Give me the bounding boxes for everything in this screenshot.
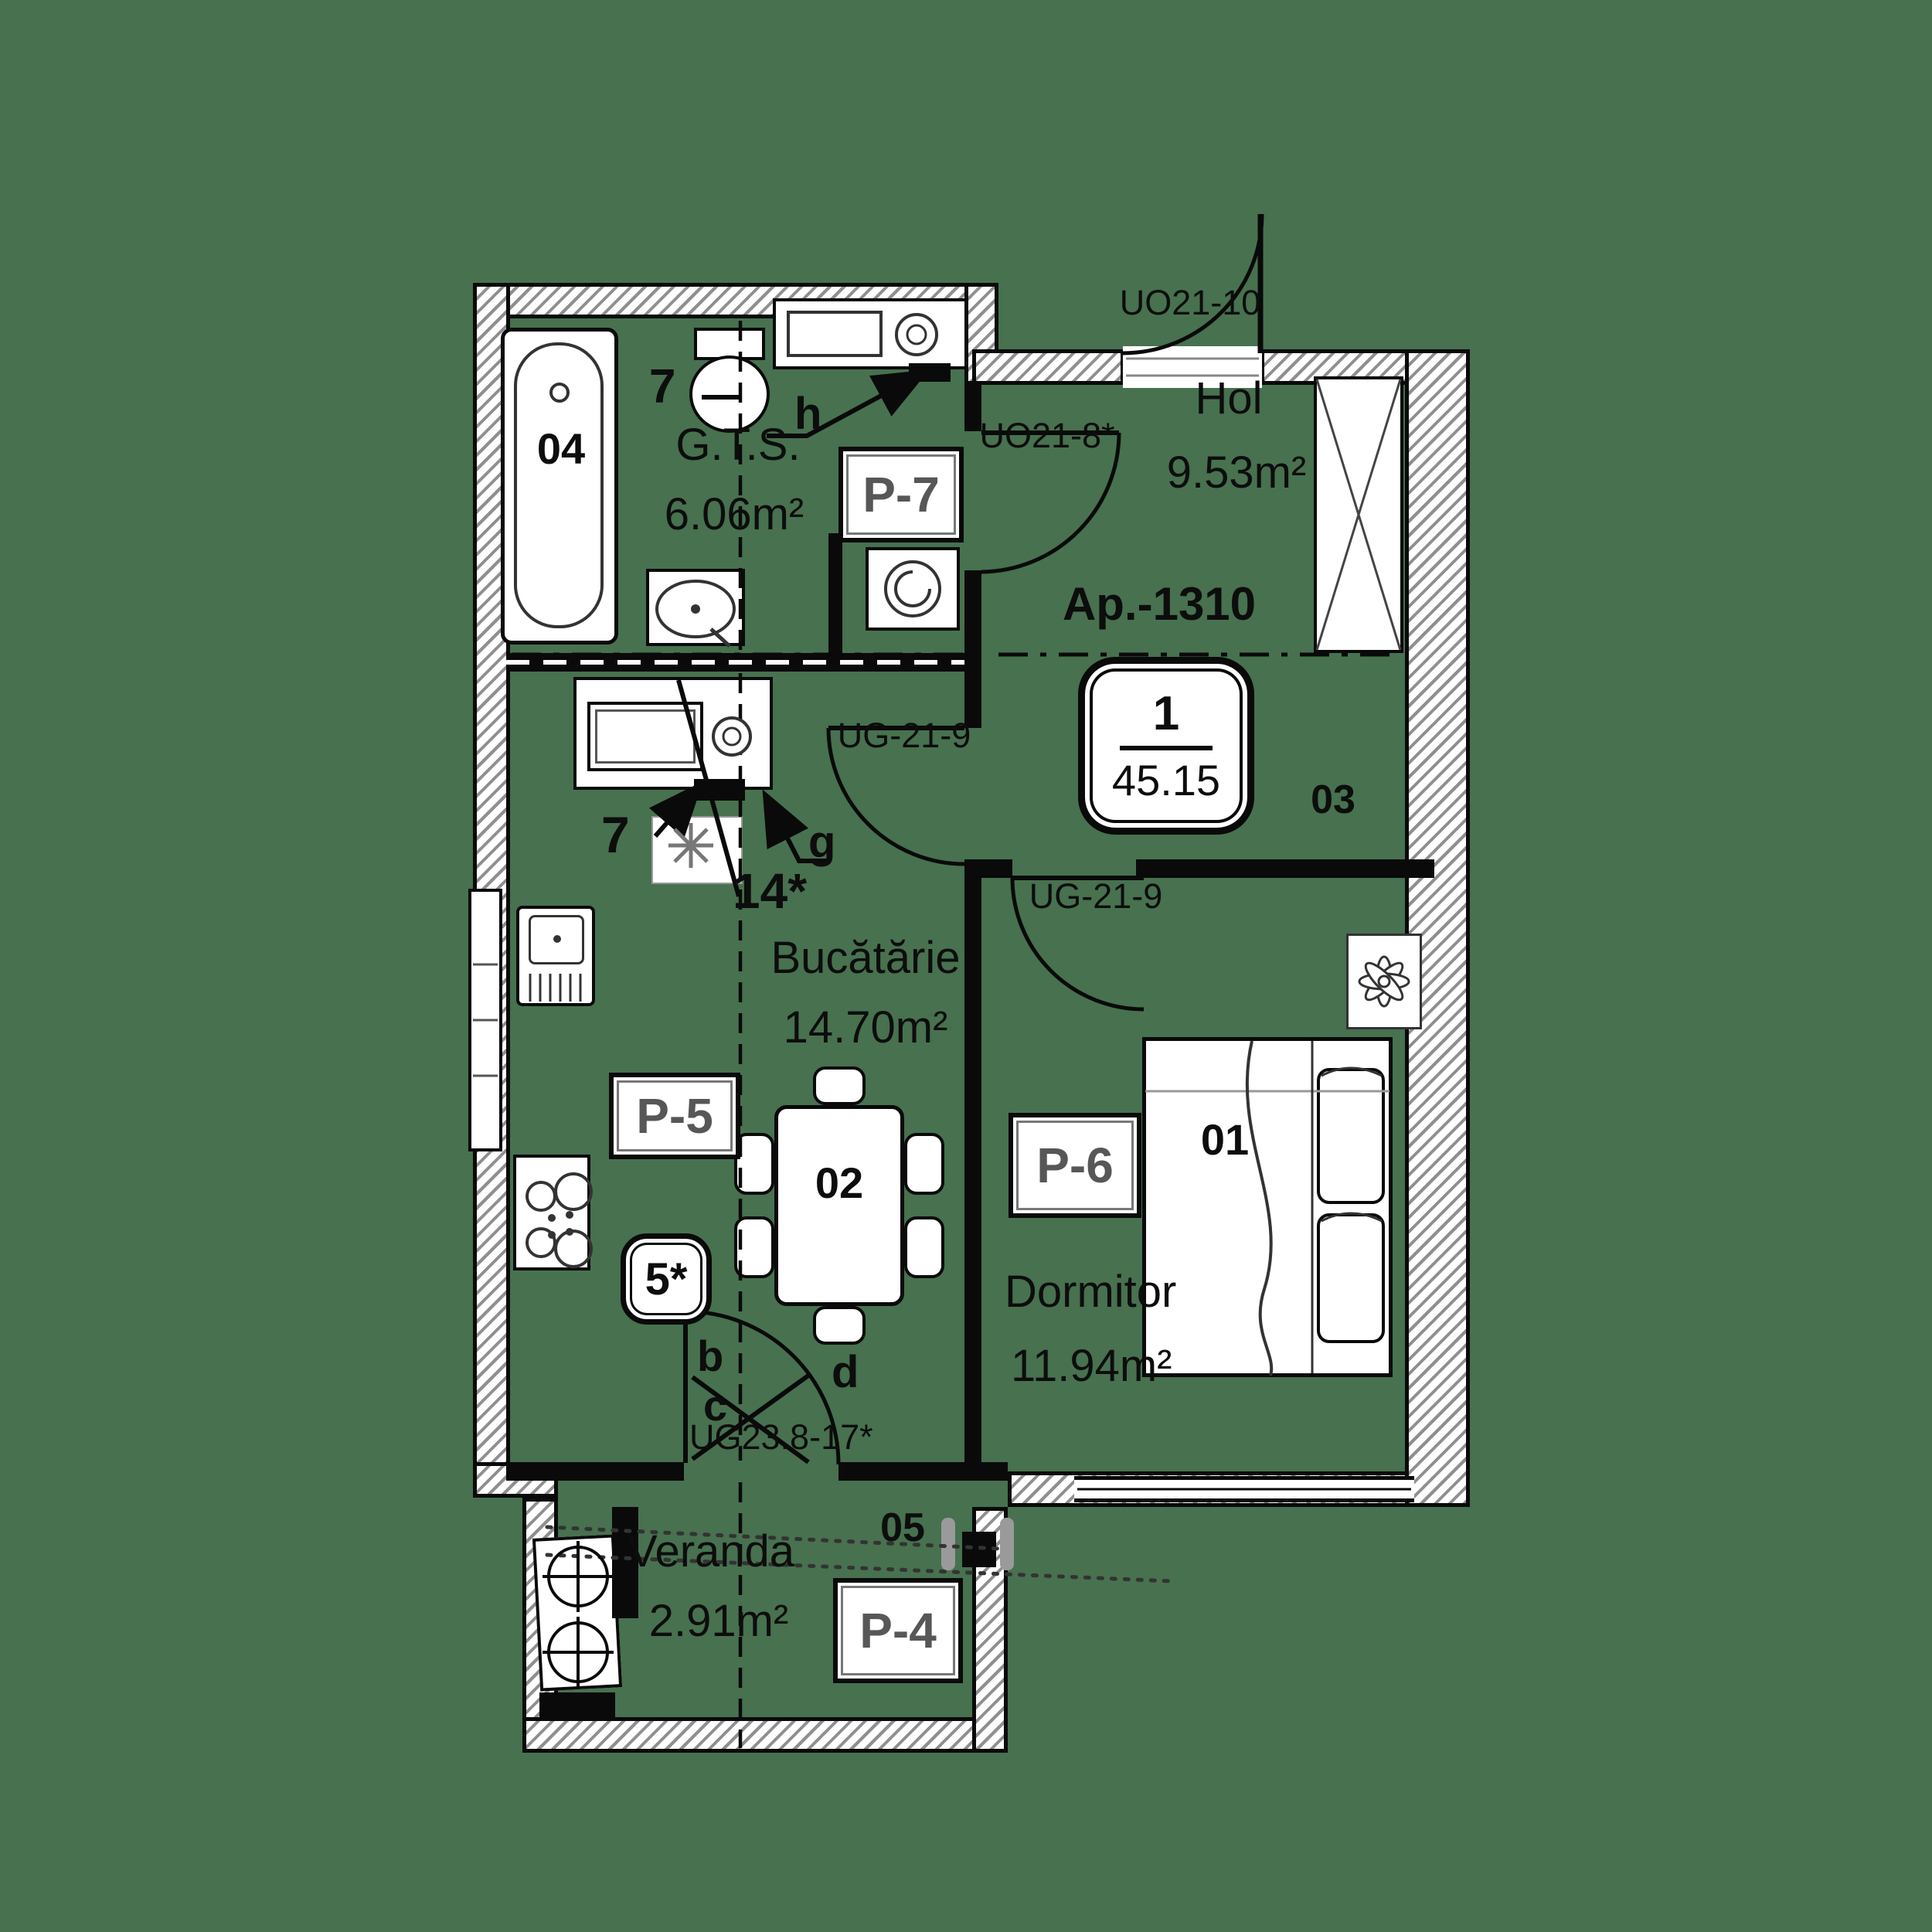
mark-d: d (832, 1349, 859, 1396)
vent-star-box (651, 816, 743, 884)
mark-h: h (794, 391, 821, 438)
kitchen-sink (516, 906, 595, 1006)
chair (734, 1216, 774, 1278)
door05-jamb (1000, 1518, 1014, 1570)
mark-b: b (697, 1334, 723, 1379)
hob-badge-label: 5* (645, 1253, 688, 1305)
wall-hall-top-left (972, 349, 1124, 385)
counter-block-g (694, 779, 745, 801)
parapet-p7: P-7 (838, 447, 964, 543)
wall-veranda-bottom (522, 1717, 1008, 1753)
kitchen-sink-basin (529, 915, 584, 964)
kitchen-boiler (587, 702, 703, 771)
hob-badge: 5* (621, 1233, 712, 1325)
wall-right (1405, 349, 1470, 1507)
pillow (1317, 1068, 1385, 1204)
badge-divider (1120, 746, 1213, 750)
door05-jamb (941, 1518, 955, 1570)
door05-leaf (962, 1532, 996, 1567)
door-label-bathroom: UO21-8* (958, 417, 1136, 454)
bathroom-counter-device (787, 311, 883, 357)
chair (904, 1133, 944, 1195)
room-area-dormitor: 11.94m² (1011, 1343, 1243, 1390)
number-table: 02 (808, 1161, 870, 1206)
wall-hall-kitchen-2 (964, 570, 981, 728)
mark-boiler: 7 (601, 808, 630, 862)
door-label-entrance: UO21-10 (1082, 284, 1298, 321)
room-area-hol: 9.53m² (1144, 450, 1329, 497)
room-name-hol: Hol (1159, 376, 1298, 423)
chair (813, 1306, 866, 1345)
bathtub (501, 328, 618, 645)
floor-plan-canvas: UO21-10 Hol 9.53m² Ap.-1310 1 45.15 03 G… (0, 0, 1932, 1932)
plant-stand (1346, 934, 1422, 1029)
wall-kitchen-bottom-right (838, 1462, 1008, 1481)
mark-g: g (808, 819, 835, 866)
window-bedroom (1074, 1476, 1414, 1502)
wall-kitchen-bottom-left (506, 1462, 684, 1481)
parapet-p5-label: P-5 (636, 1087, 713, 1145)
room-name-veranda: Veranda (595, 1529, 827, 1576)
door-label-veranda: UG23.8-17* (689, 1419, 937, 1455)
number-hall: 03 (1298, 779, 1368, 821)
parapet-p6-label: P-6 (1036, 1137, 1114, 1194)
apartment-badge: 1 45.15 (1078, 657, 1254, 835)
badge-total-area: 45.15 (1112, 755, 1220, 805)
room-name-bucatarie: Bucătărie (726, 935, 1005, 982)
shaft-panel (1314, 376, 1403, 653)
room-area-veranda: 2.91m² (618, 1598, 819, 1645)
bathtub-inner (514, 342, 604, 628)
number-bathtub: 04 (532, 427, 590, 472)
chair (904, 1216, 944, 1278)
ac-dark-block (539, 1692, 615, 1720)
wall-bedroom-top (1136, 859, 1434, 878)
window-left (468, 889, 502, 1151)
vent-block-h (909, 363, 951, 382)
door-label-bedroom: UG-21-9 (1011, 878, 1181, 914)
number-bed: 01 (1190, 1117, 1260, 1163)
door-label-kitchen: UG-21-9 (819, 717, 989, 753)
mark-toilet: 7 (649, 362, 675, 412)
pillow (1317, 1213, 1385, 1343)
chair (813, 1066, 866, 1105)
number-veranda-door: 05 (864, 1507, 941, 1549)
parapet-p6: P-6 (1009, 1113, 1141, 1218)
stove (513, 1155, 590, 1270)
bathroom-counter (773, 298, 968, 369)
parapet-p7-label: P-7 (862, 466, 940, 523)
parapet-p4: P-4 (833, 1578, 963, 1683)
room-name-dormitor: Dormitor (1005, 1269, 1236, 1316)
room-area-bucatarie: 14.70m² (742, 1005, 989, 1052)
apartment-code: Ap.-1310 (1043, 580, 1275, 628)
room-area-gts: 6.06m² (641, 492, 827, 539)
kitchen-counter (573, 677, 773, 790)
mark-vent: 14* (733, 866, 825, 917)
bathroom-sink (646, 569, 745, 646)
badge-rooms-count: 1 (1153, 686, 1179, 741)
parapet-p5: P-5 (609, 1073, 740, 1159)
wall-bedroom-top-stub (964, 859, 1012, 878)
wall-bath-bottom (506, 653, 981, 672)
parapet-p4-label: P-4 (859, 1602, 937, 1659)
washing-machine (866, 547, 960, 631)
wall-washer-nook (828, 533, 842, 655)
